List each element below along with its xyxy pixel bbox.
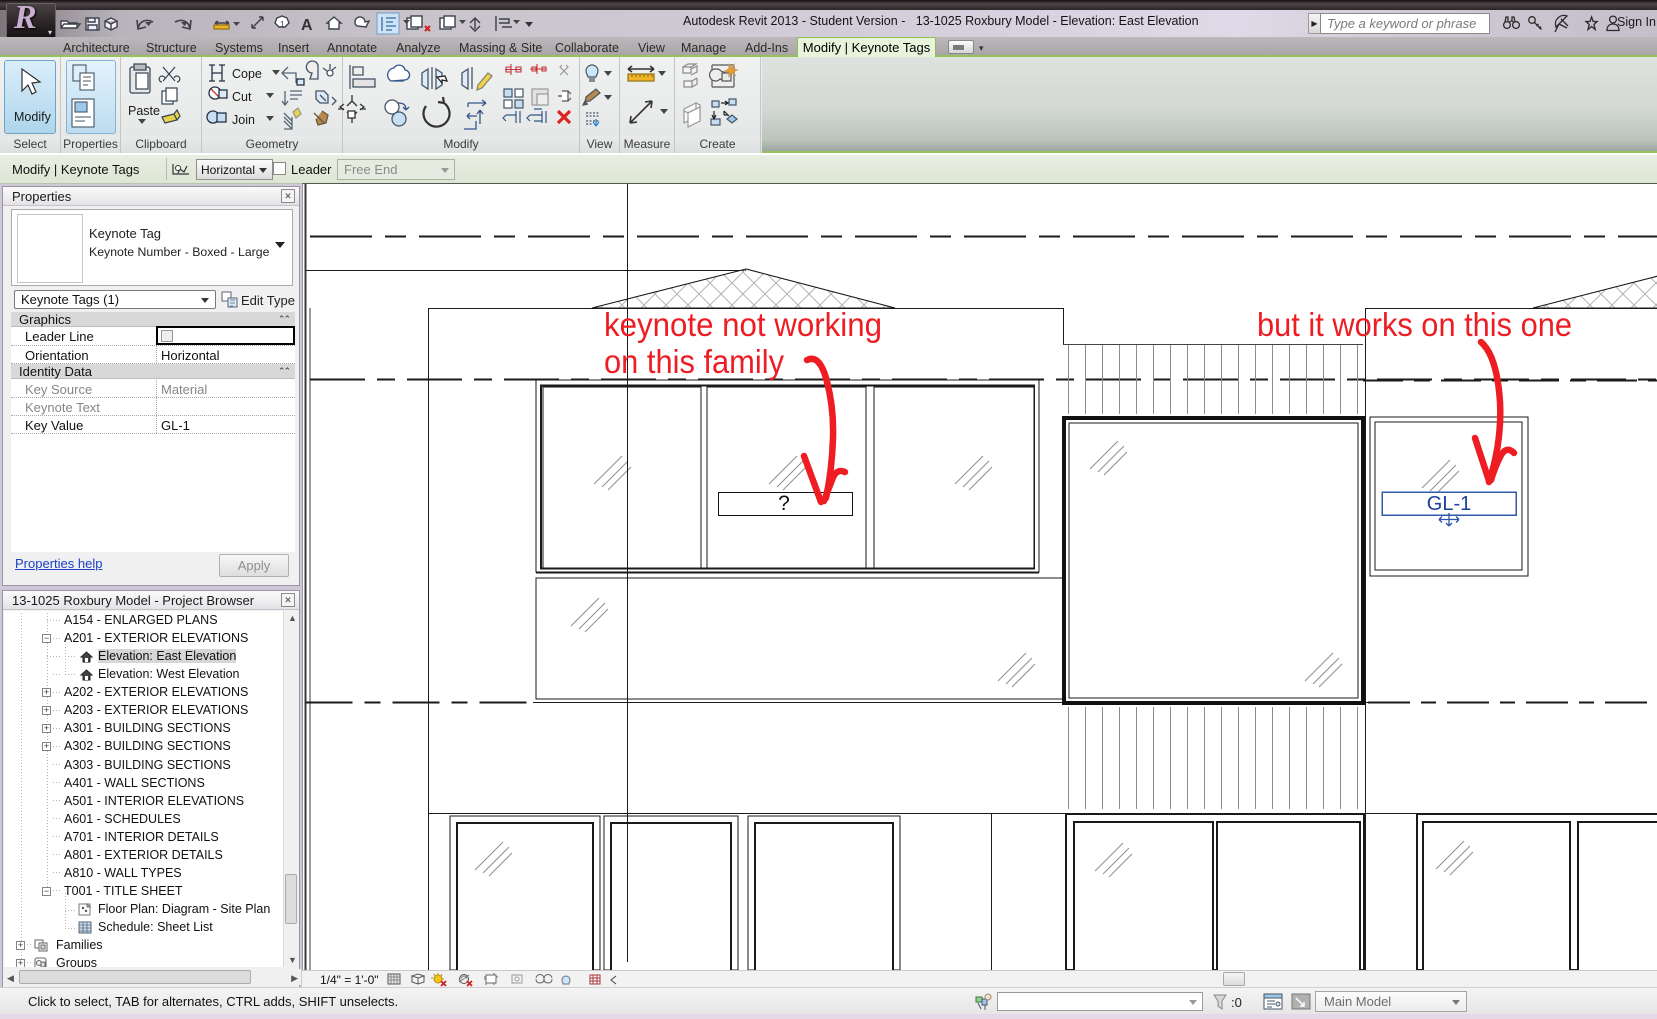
svg-text:keynote not working: keynote not working	[604, 306, 882, 343]
svg-text:on this family: on this family	[604, 343, 784, 380]
svg-text:Paste: Paste	[128, 104, 160, 118]
svg-text:Cut: Cut	[232, 90, 252, 104]
svg-text:Modify: Modify	[14, 110, 52, 124]
svg-text:GL-1: GL-1	[1427, 493, 1471, 515]
svg-text:Join: Join	[232, 113, 255, 127]
svg-text:?: ?	[778, 492, 790, 515]
svg-text:Cope: Cope	[232, 67, 262, 81]
svg-text:but it works on this one: but it works on this one	[1257, 306, 1572, 343]
svg-text:A: A	[301, 17, 313, 34]
svg-text:1: 1	[280, 20, 285, 29]
